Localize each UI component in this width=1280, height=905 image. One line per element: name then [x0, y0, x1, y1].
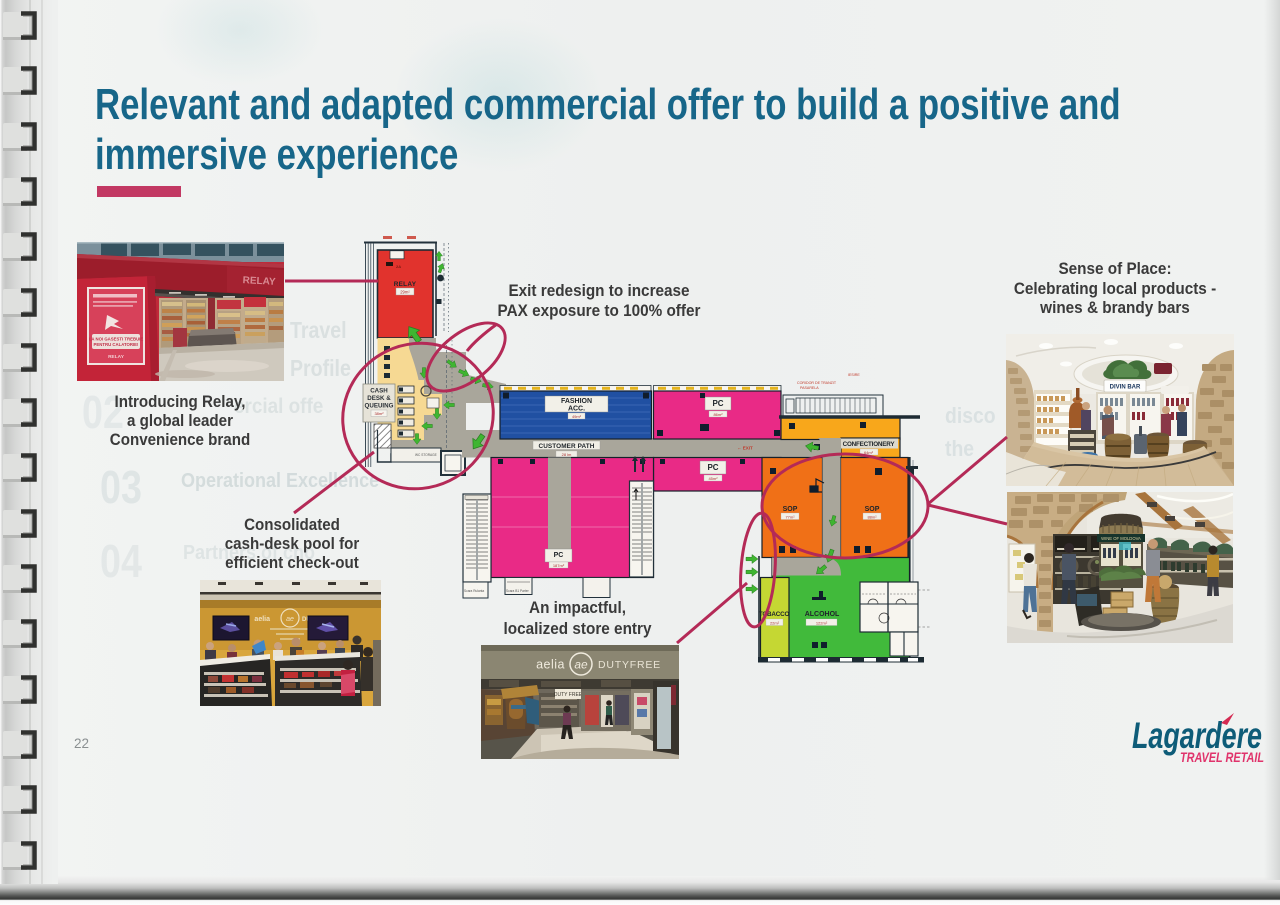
svg-text:DESK &: DESK & — [367, 395, 391, 402]
svg-text:CUSTOMER PATH: CUSTOMER PATH — [539, 443, 595, 450]
svg-text:PC: PC — [554, 552, 564, 559]
svg-text:FASHION: FASHION — [561, 398, 592, 405]
svg-text:TRAVEL RETAIL: TRAVEL RETAIL — [1180, 749, 1264, 765]
svg-text:QUEUING: QUEUING — [365, 403, 394, 410]
svg-text:ALCOHOL: ALCOHOL — [805, 611, 840, 618]
svg-text:PC: PC — [712, 399, 723, 408]
svg-text:86m²: 86m² — [713, 412, 723, 417]
svg-text:29m²: 29m² — [400, 289, 410, 294]
svg-text:IESIRE: IESIRE — [848, 373, 860, 377]
svg-text:28 lm: 28 lm — [562, 452, 572, 457]
svg-text:Scara Rulanta: Scara Rulanta — [464, 589, 484, 593]
svg-text:← EXIT: ← EXIT — [737, 446, 753, 451]
svg-text:122m²: 122m² — [816, 620, 828, 625]
svg-text:DUTYFREE: DUTYFREE — [598, 659, 661, 671]
svg-text:PENTRU CALATORIE!: PENTRU CALATORIE! — [94, 342, 140, 347]
svg-text:RELAY: RELAY — [394, 281, 417, 288]
svg-text:ae: ae — [286, 616, 294, 623]
svg-text:64m²: 64m² — [864, 450, 874, 455]
svg-text:49m²: 49m² — [572, 414, 582, 419]
svg-text:ae: ae — [574, 658, 588, 672]
svg-text:187m²: 187m² — [553, 563, 565, 568]
svg-text:22m²: 22m² — [770, 620, 780, 625]
svg-text:DUTY FREE: DUTY FREE — [554, 692, 583, 698]
svg-text:77m²: 77m² — [785, 514, 795, 519]
svg-text:LA NOI GASESTI TREBUIE: LA NOI GASESTI TREBUIE — [89, 337, 144, 342]
svg-text:45m²: 45m² — [708, 476, 718, 481]
svg-text:CONFECTIONERY: CONFECTIONERY — [843, 441, 896, 448]
svg-text:SOP: SOP — [865, 506, 880, 513]
svg-text:RELAY: RELAY — [108, 354, 125, 360]
svg-text:WC STORAGE: WC STORAGE — [415, 453, 437, 457]
svg-text:88m²: 88m² — [867, 514, 877, 519]
svg-text:PASARELA: PASARELA — [800, 386, 819, 390]
svg-text:RELAY: RELAY — [242, 275, 276, 288]
svg-text:aelia: aelia — [536, 658, 565, 672]
svg-text:PC: PC — [707, 463, 718, 472]
svg-text:aelia: aelia — [254, 616, 270, 623]
svg-text:ACC.: ACC. — [568, 406, 585, 413]
svg-text:WINE OF MOLDOVA: WINE OF MOLDOVA — [1101, 536, 1141, 541]
svg-text:38m²: 38m² — [374, 411, 384, 416]
svg-text:SOP: SOP — [783, 506, 798, 513]
svg-text:CASH: CASH — [370, 388, 388, 395]
svg-text:DIVIN BAR: DIVIN BAR — [1110, 385, 1141, 391]
svg-text:TOBACCO: TOBACCO — [759, 611, 790, 618]
svg-text:CORIDOR DE TRANZIT: CORIDOR DE TRANZIT — [797, 381, 837, 385]
svg-text:Scara B1 Parter: Scara B1 Parter — [506, 589, 530, 593]
svg-text:2A: 2A — [396, 264, 401, 269]
